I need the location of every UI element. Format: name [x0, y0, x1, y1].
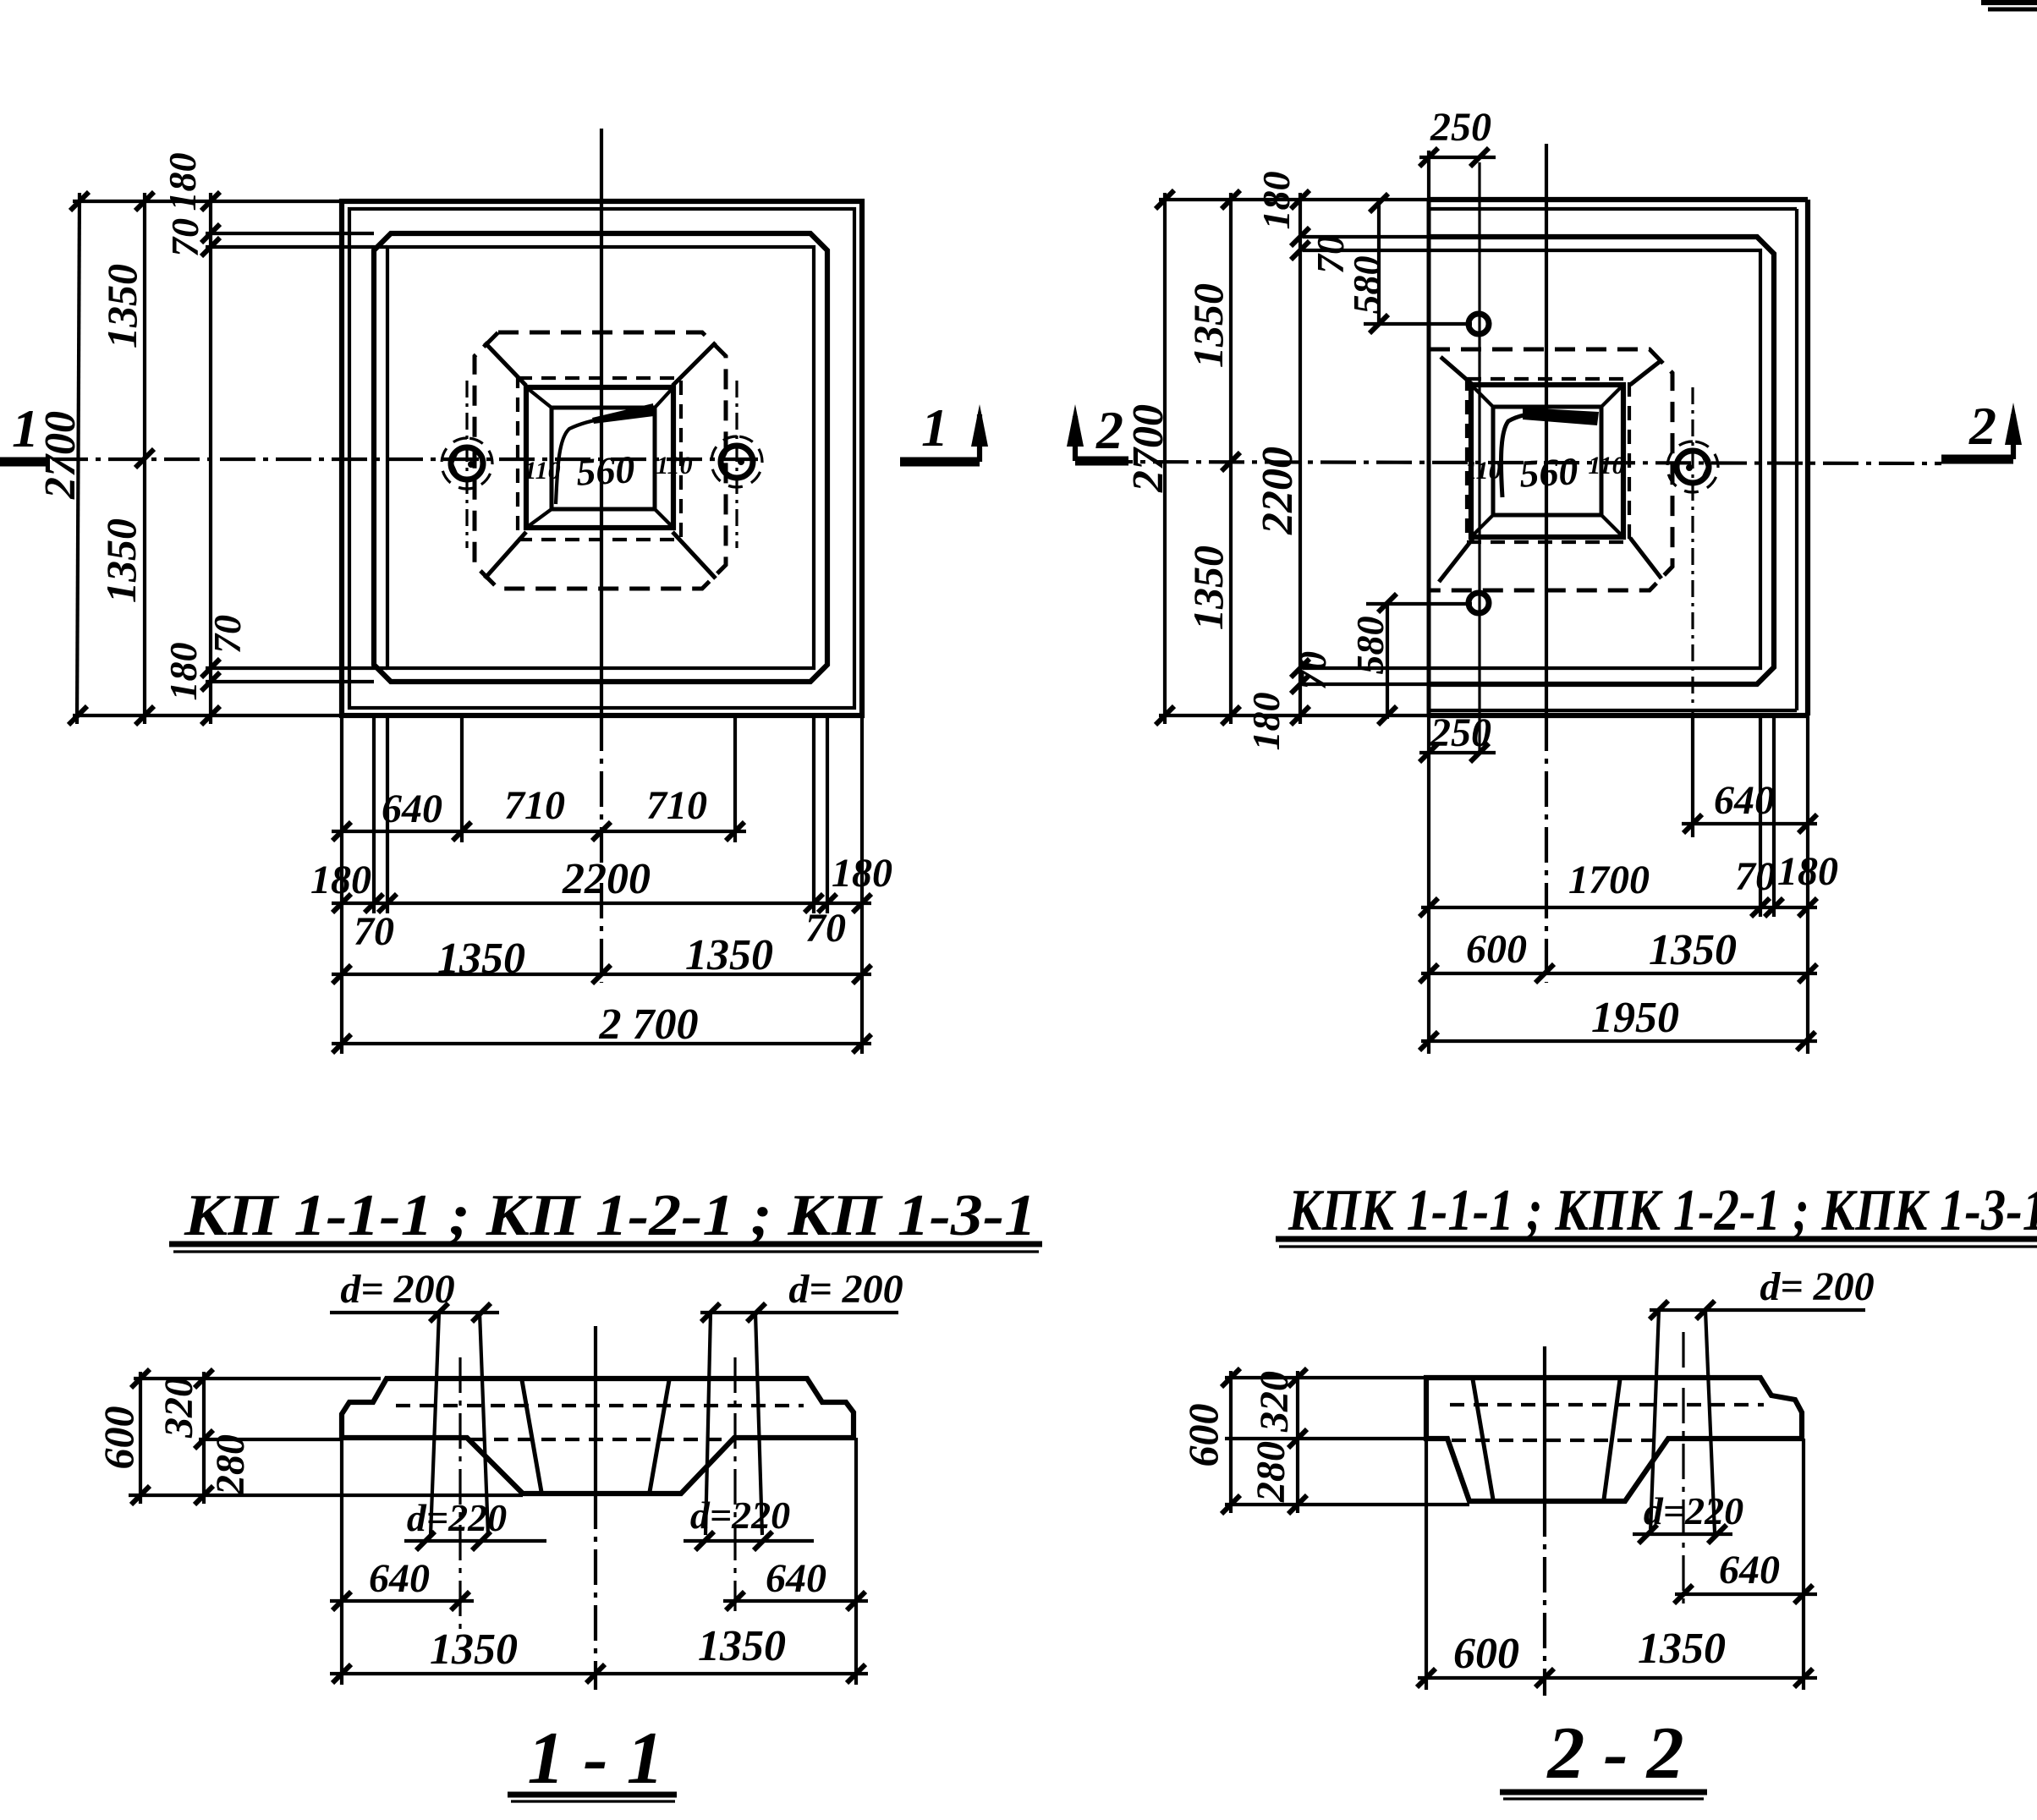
svg-text:180: 180	[162, 643, 205, 701]
svg-text:d=220: d=220	[690, 1494, 790, 1537]
svg-text:1350: 1350	[685, 931, 773, 979]
svg-text:1700: 1700	[1568, 858, 1650, 902]
svg-text:640: 640	[1714, 778, 1775, 823]
svg-text:280: 280	[1249, 1441, 1293, 1503]
svg-text:180: 180	[832, 851, 892, 896]
svg-text:250: 250	[1430, 105, 1491, 150]
svg-text:70: 70	[206, 615, 249, 654]
svg-text:2700: 2700	[1124, 404, 1172, 493]
svg-text:2: 2	[1968, 396, 1996, 456]
svg-text:70: 70	[354, 909, 394, 954]
svg-text:600: 600	[95, 1406, 142, 1470]
svg-text:1: 1	[921, 397, 948, 458]
svg-text:1350: 1350	[1638, 1625, 1726, 1673]
svg-text:1950: 1950	[1591, 994, 1679, 1042]
svg-text:70: 70	[805, 906, 846, 951]
svg-text:110: 110	[1588, 452, 1624, 480]
svg-text:70: 70	[1735, 854, 1776, 899]
svg-text:d= 200: d= 200	[1760, 1264, 1874, 1309]
svg-text:2: 2	[1095, 400, 1123, 460]
svg-text:70: 70	[1309, 235, 1352, 274]
svg-text:640: 640	[766, 1556, 826, 1601]
svg-text:2200: 2200	[562, 855, 651, 903]
svg-text:280: 280	[208, 1434, 253, 1496]
svg-text:2200: 2200	[1254, 447, 1302, 535]
svg-text:640: 640	[1719, 1548, 1780, 1592]
svg-text:560: 560	[575, 447, 636, 494]
svg-text:710: 710	[646, 783, 707, 828]
svg-text:КПК 1-1-1 ; КПК 1-2-1 ; КПК 1-: КПК 1-1-1 ; КПК 1-2-1 ; КПК 1-3-1	[1288, 1178, 2037, 1243]
svg-text:1: 1	[12, 398, 39, 458]
svg-text:1350: 1350	[430, 1625, 518, 1674]
svg-text:1350: 1350	[98, 264, 145, 348]
svg-text:1350: 1350	[1184, 545, 1232, 630]
svg-text:600: 600	[1179, 1404, 1227, 1467]
svg-text:180: 180	[1244, 693, 1288, 751]
svg-text:1350: 1350	[437, 935, 525, 983]
svg-text:70: 70	[163, 218, 206, 257]
svg-text:d= 200: d= 200	[788, 1267, 903, 1312]
svg-text:180: 180	[161, 153, 204, 211]
svg-text:600: 600	[1453, 1630, 1519, 1678]
svg-text:110: 110	[656, 452, 692, 480]
svg-text:2 700: 2 700	[599, 1000, 699, 1049]
svg-text:d=220: d=220	[1644, 1489, 1743, 1532]
svg-text:1 - 1: 1 - 1	[527, 1718, 663, 1800]
svg-text:d= 200: d= 200	[340, 1267, 454, 1312]
svg-text:2 - 2: 2 - 2	[1546, 1713, 1683, 1795]
svg-text:560: 560	[1518, 449, 1579, 496]
svg-text:710: 710	[504, 783, 565, 828]
svg-text:1350: 1350	[1649, 926, 1737, 974]
svg-text:70: 70	[1291, 651, 1334, 690]
svg-text:1350: 1350	[97, 518, 145, 603]
svg-text:180: 180	[1777, 849, 1838, 894]
svg-text:640: 640	[382, 787, 442, 831]
svg-text:320: 320	[1252, 1371, 1297, 1433]
svg-text:2700: 2700	[36, 411, 85, 500]
svg-text:250: 250	[1430, 710, 1491, 755]
svg-text:1350: 1350	[1184, 283, 1232, 368]
svg-text:640: 640	[369, 1556, 430, 1601]
svg-text:d=220: d=220	[407, 1496, 507, 1539]
svg-text:600: 600	[1466, 927, 1527, 972]
svg-text:180: 180	[310, 858, 371, 902]
svg-text:320: 320	[156, 1377, 201, 1439]
svg-text:580: 580	[1348, 617, 1392, 675]
svg-text:КП 1-1-1 ; КП 1-2-1 ; КП 1-3-1: КП 1-1-1 ; КП 1-2-1 ; КП 1-3-1	[184, 1183, 1036, 1248]
svg-text:180: 180	[1255, 172, 1298, 230]
svg-text:1350: 1350	[698, 1622, 786, 1670]
